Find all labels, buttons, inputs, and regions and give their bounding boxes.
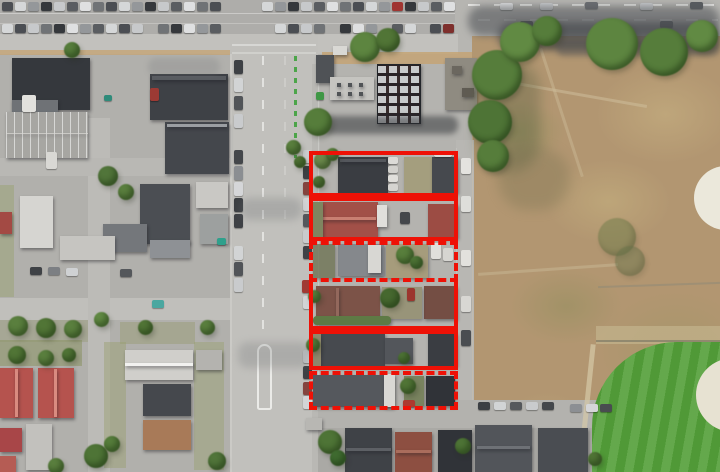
parcel-overlay-layer (0, 0, 720, 472)
satellite-map (0, 0, 720, 472)
parcel-outline-1-solid (309, 151, 458, 197)
parcel-outline-5-solid (309, 330, 458, 370)
parcel-outline-4-solid (309, 282, 458, 330)
parcel-outline-6-dashed (309, 371, 458, 410)
parcel-outline-2-solid (309, 197, 458, 241)
parcel-outline-3-dashed (309, 241, 458, 282)
